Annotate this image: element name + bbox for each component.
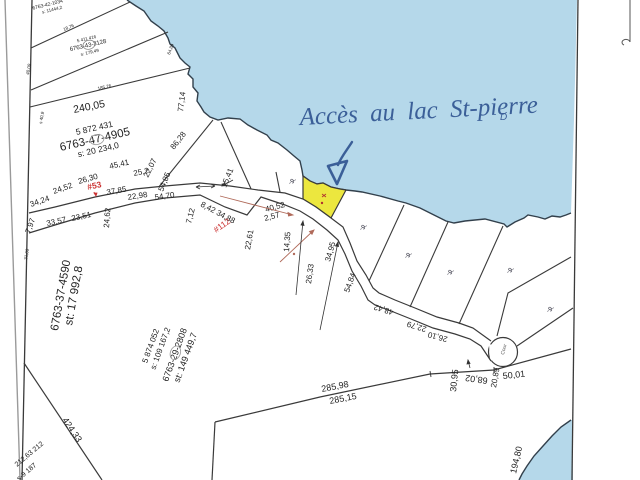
svg-text:D: D <box>500 112 507 123</box>
svg-text:14,35: 14,35 <box>282 231 292 252</box>
svg-text:24,62: 24,62 <box>102 207 112 228</box>
